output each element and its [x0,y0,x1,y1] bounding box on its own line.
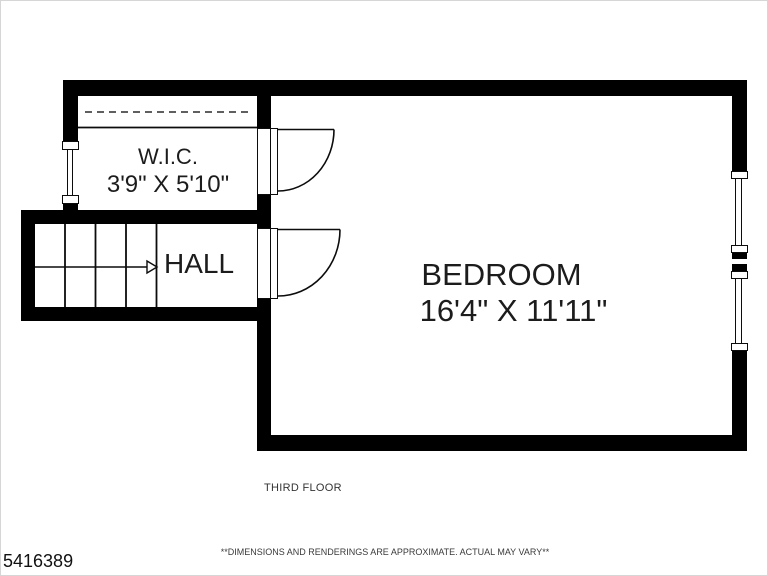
floor-title: THIRD FLOOR [264,482,342,494]
wall-hall-left [21,210,35,321]
bedroom-room-dimensions: 16'4" X 11'11" [283,293,744,329]
wall-hall-bottom [21,307,271,321]
wic-door-swing-icon [278,130,334,192]
bedroom-room-name: BEDROOM [271,257,732,293]
window-left-glass [67,150,73,195]
window-right2-sill-bottom [731,343,748,351]
window-left-sill-bottom [62,195,79,204]
wall-bottom [257,435,747,451]
wic-door-leaf [270,128,278,195]
closet-rod-icon [78,112,257,128]
wic-room-dimensions: 3'9" X 5'10" [78,171,258,199]
window-right1-glass [735,179,742,245]
window-left-sill-top [62,141,79,150]
stairs-icon [65,224,157,307]
listing-id: 5416389 [3,551,73,572]
window-right1-sill-top [731,171,748,179]
wall-top [64,80,747,96]
floorplan-canvas: W.I.C. 3'9" X 5'10" HALL BEDROOM 16'4" X… [0,0,768,576]
wic-room-name: W.I.C. [78,144,258,170]
wall-divider-seg-c [257,299,271,435]
wall-divider-seg-a [257,80,271,128]
hall-room-name: HALL [164,248,234,280]
window-right2-sill-top [731,271,748,279]
wall-right-pier-a [732,253,747,259]
wall-left-wic-upper [63,80,78,141]
hall-door-frame [257,228,271,299]
wall-wic-hall-divider [21,210,271,224]
window-right1-sill-bottom [731,245,748,253]
wall-divider-seg-b [257,195,271,228]
wall-right-pier-b [732,264,747,271]
stair-direction-arrow-icon [35,261,157,273]
wic-door-frame [257,128,271,195]
disclaimer-text: **DIMENSIONS AND RENDERINGS ARE APPROXIM… [1,547,768,557]
wall-right-upper [732,80,747,171]
